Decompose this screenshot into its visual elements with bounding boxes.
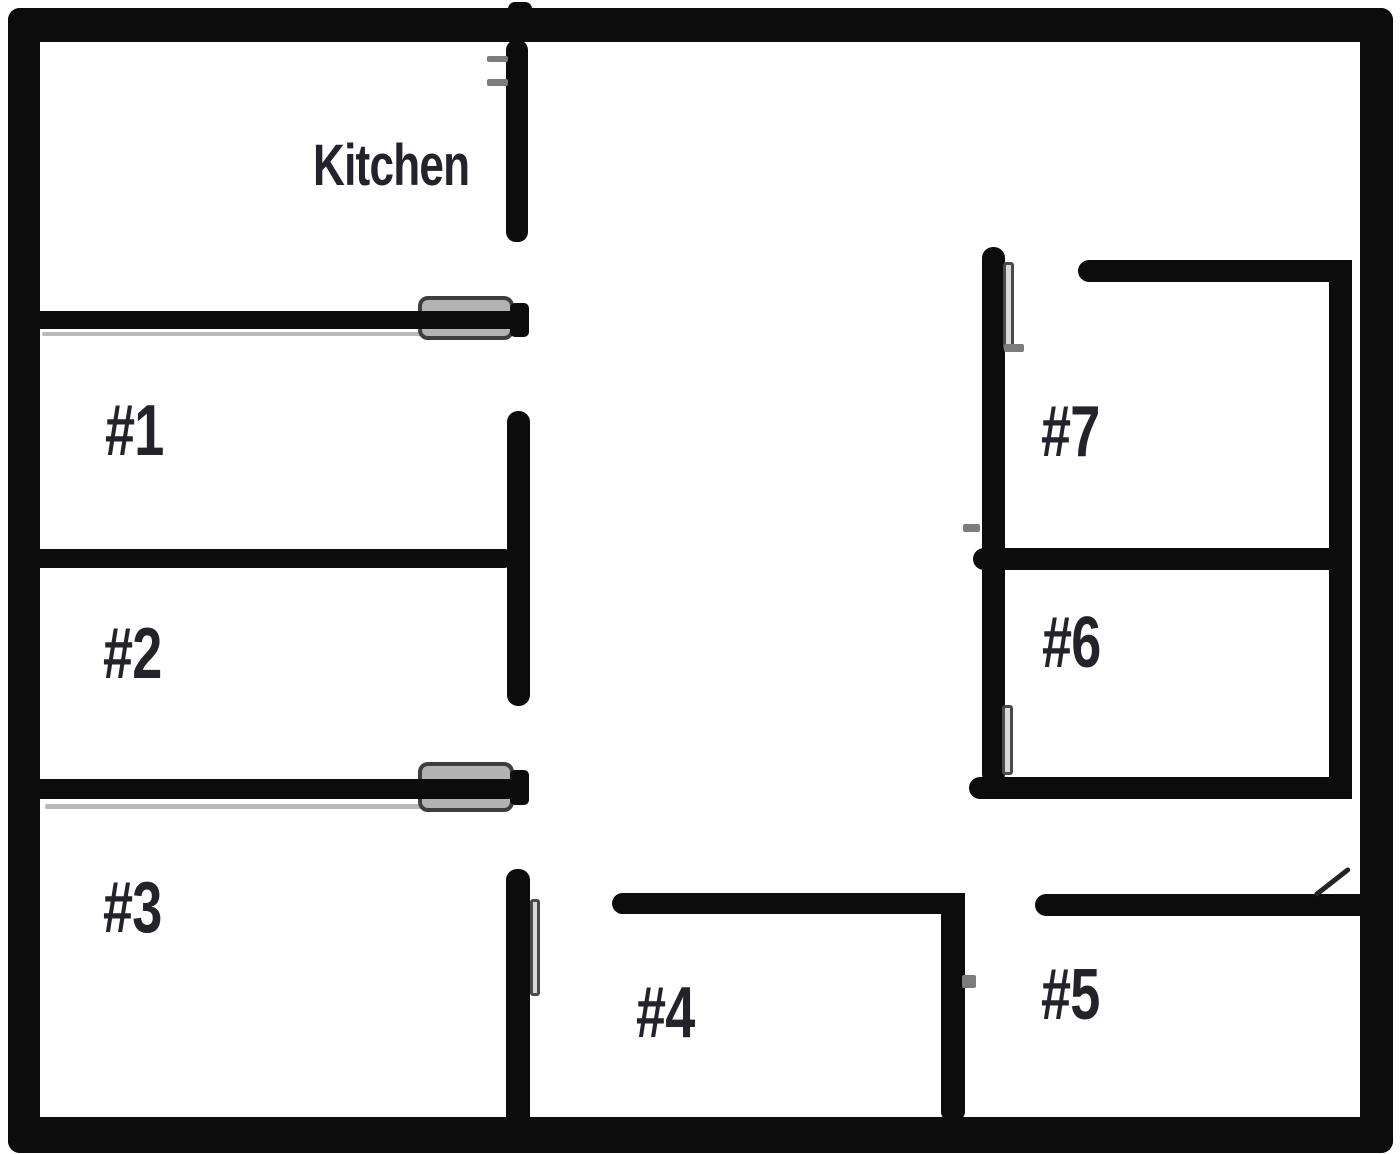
room3-label: #3 <box>103 872 162 944</box>
room5-top-wall <box>1035 894 1365 916</box>
room6-bottom-wall <box>969 777 1352 799</box>
room4-top-wall <box>612 893 965 914</box>
room2-room3-wall <box>30 779 527 799</box>
outer-wall-bottom <box>8 1117 1393 1153</box>
room5-door-mark <box>962 975 976 988</box>
kitchen-label: Kitchen <box>313 137 469 195</box>
kitchen-wall-track-line <box>42 332 422 336</box>
room4-label: #4 <box>636 977 695 1049</box>
room3-wall-track-line <box>45 804 427 809</box>
room7-top-wall <box>1078 260 1352 282</box>
room2-label: #2 <box>103 618 162 690</box>
outer-wall-left <box>8 8 40 1153</box>
room1-label: #1 <box>105 395 164 467</box>
floor-plan: Kitchen #1 #2 #3 #4 #5 #6 #7 <box>0 0 1400 1154</box>
room7-door-leaf <box>1003 262 1014 350</box>
kitchen-right-wall <box>506 40 528 242</box>
room3-door-leaf <box>530 899 540 996</box>
room6-label: #6 <box>1042 607 1101 679</box>
inner-right-wall <box>1329 260 1352 798</box>
kitchen-top-bump <box>508 2 532 16</box>
outer-wall-top <box>8 8 1393 42</box>
room1-room2-wall <box>30 549 512 568</box>
room7-room6-divider <box>973 548 1352 570</box>
room5-wall-diagonal-mark <box>1313 866 1351 897</box>
room7-room6-junction-mark <box>963 524 980 532</box>
kitchen-door-hinge-mark-1 <box>487 56 508 62</box>
pocket-door-room3-end-cap <box>510 770 529 805</box>
room7-label: #7 <box>1041 396 1100 468</box>
pocket-door-kitchen-end-cap <box>510 303 529 337</box>
room4-right-wall <box>941 893 965 1120</box>
room7-room6-left-wall <box>982 247 1005 785</box>
outer-wall-right <box>1360 8 1393 1153</box>
room7-door-foot-mark <box>1004 344 1024 352</box>
hallway-wall-lower <box>506 869 530 1120</box>
kitchen-door-hinge-mark-2 <box>487 79 508 86</box>
kitchen-room1-wall <box>30 311 527 329</box>
room6-door-leaf <box>1002 705 1013 775</box>
hallway-wall-upper <box>507 411 530 706</box>
room5-label: #5 <box>1041 959 1100 1031</box>
